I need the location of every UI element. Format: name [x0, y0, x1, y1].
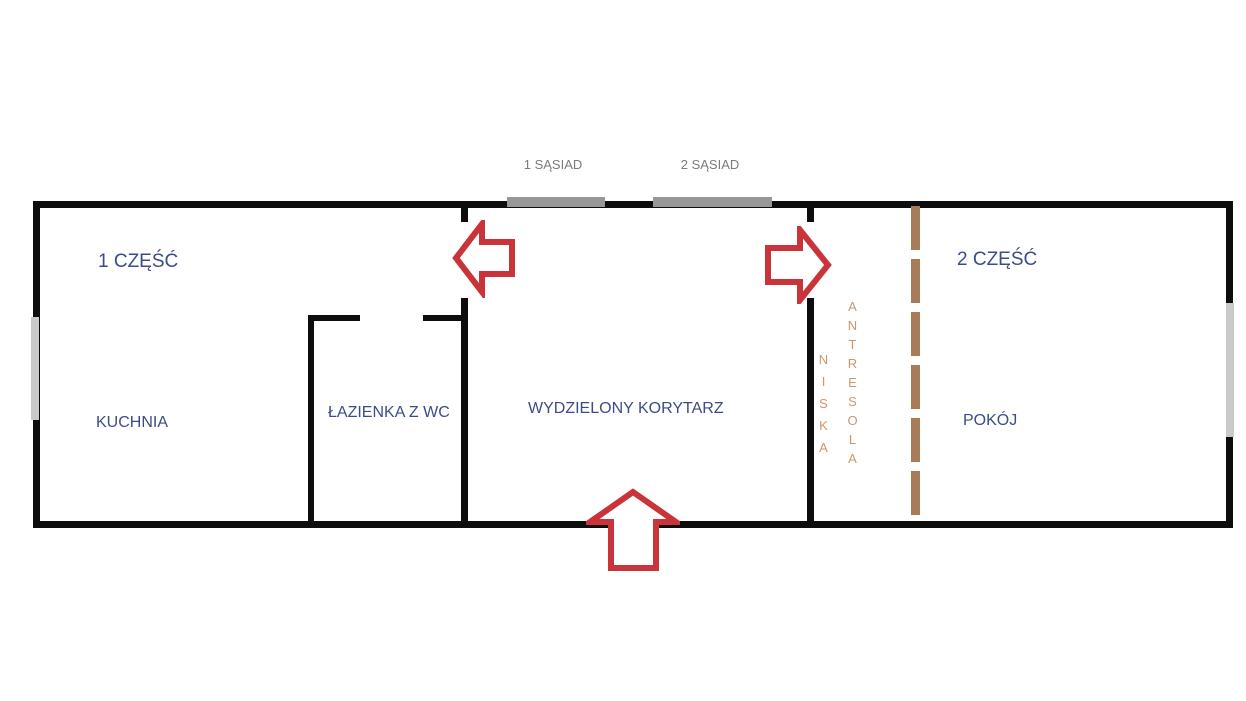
mezzanine-divider: [911, 206, 920, 523]
bathroom-wall-top-left-segment: [308, 315, 360, 321]
window-right: [1226, 303, 1234, 437]
window-left: [31, 317, 39, 420]
section-part1-label: 1 CZĘŚĆ: [98, 251, 178, 273]
room-kitchen-label: KUCHNIA: [96, 414, 168, 432]
mezzanine-antresola-label: ANTRESOLA: [845, 299, 860, 470]
corridor-wall-left: [461, 298, 468, 528]
corridor-wall-right-stub: [807, 201, 814, 222]
bathroom-wall-left: [308, 315, 314, 528]
room-bathroom-label: ŁAZIENKA Z WC: [328, 404, 450, 422]
arrow-left-icon: [452, 220, 516, 298]
section-part2-label: 2 CZĘŚĆ: [957, 249, 1037, 271]
corridor-wall-right: [807, 298, 814, 528]
arrow-up-icon: [586, 488, 680, 574]
neighbor2-label: 2 SĄSIAD: [660, 157, 760, 172]
neighbor1-label: 1 SĄSIAD: [503, 157, 603, 172]
room-corridor-label: WYDZIELONY KORYTARZ: [528, 400, 724, 418]
floor-plan: 1 SĄSIAD 2 SĄSIAD 1 CZĘŚĆ 2 CZĘŚĆ KUCHNI…: [0, 0, 1246, 701]
room-main-label: POKÓJ: [963, 412, 1017, 430]
mezzanine-niska-label: NISKA: [816, 352, 831, 462]
corridor-wall-left-stub: [461, 201, 468, 222]
neighbor1-door: [507, 197, 605, 207]
wall-top: [33, 201, 1233, 208]
arrow-right-icon: [764, 226, 832, 304]
neighbor2-door: [653, 197, 772, 207]
